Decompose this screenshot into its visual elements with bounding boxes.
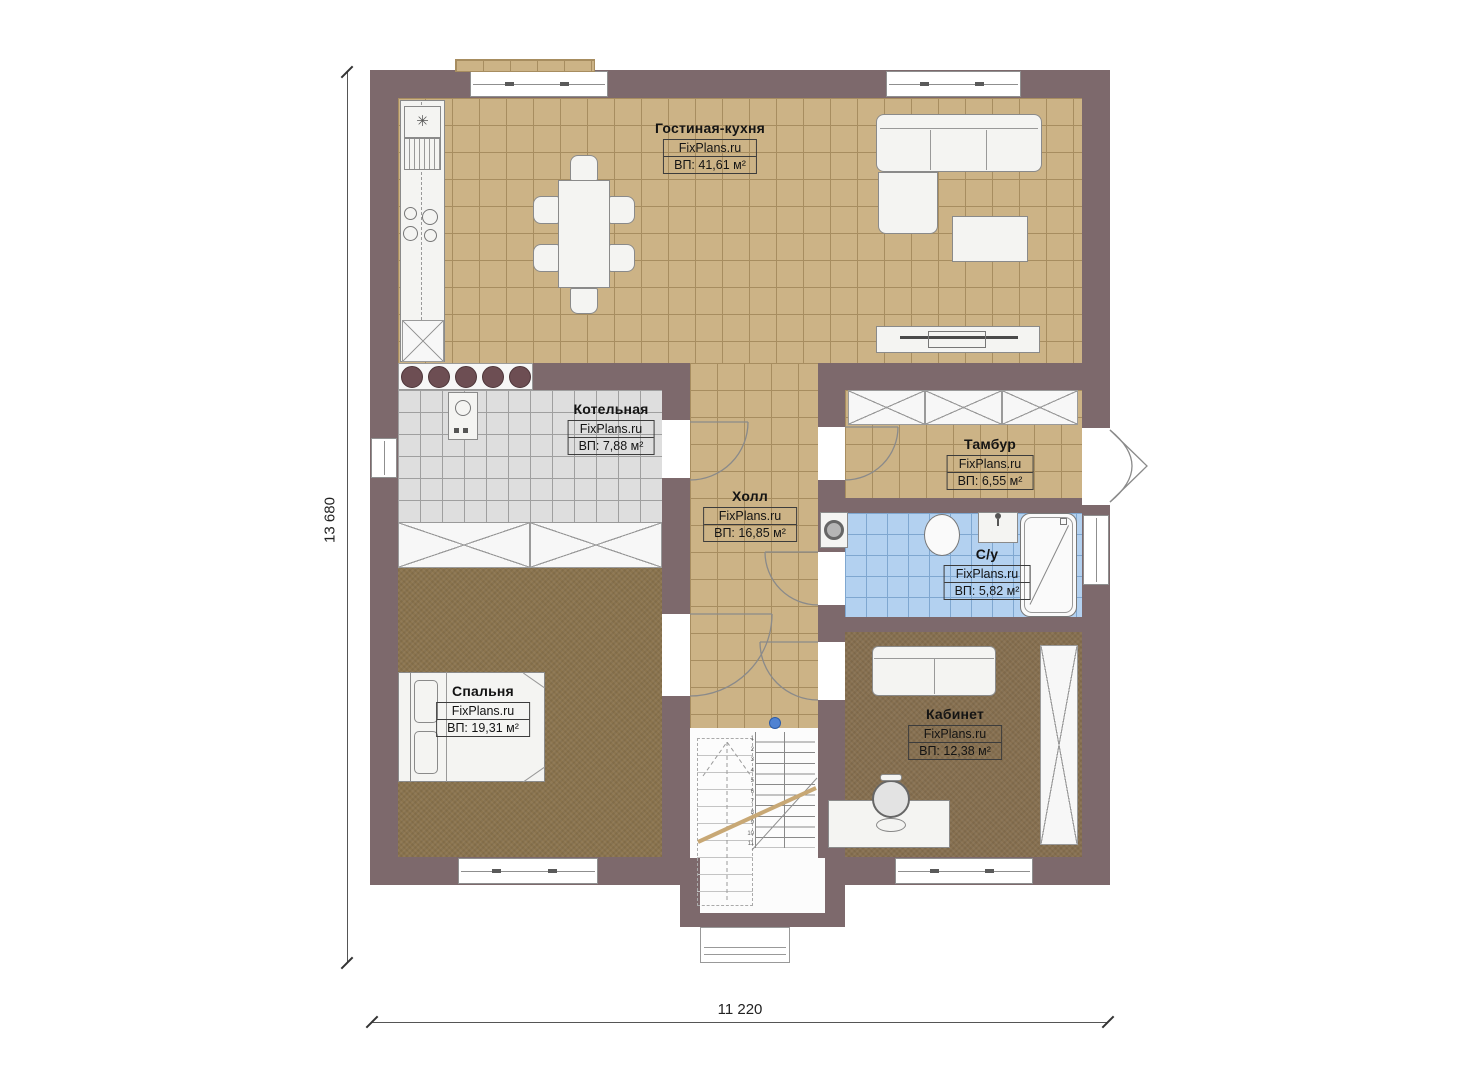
entrance-door-arc: [1110, 430, 1132, 502]
stair-handrail: [698, 788, 816, 842]
dimension-line-horizontal: [372, 1022, 1108, 1023]
dimension-line-vertical: [347, 72, 348, 963]
door-arc: [690, 422, 748, 480]
plan-overlay: [0, 0, 1474, 1080]
door-arc: [765, 552, 818, 605]
entrance-door-leaf: [1110, 430, 1147, 502]
door-arc: [760, 642, 818, 700]
door-arc: [690, 614, 772, 696]
stair-level-marker: [770, 718, 781, 729]
dimension-width-label: 11 220: [718, 1001, 763, 1018]
floor-plan: ✳: [0, 0, 1474, 1080]
door-arc: [845, 427, 898, 480]
dimension-height-label: 13 680: [322, 497, 339, 543]
